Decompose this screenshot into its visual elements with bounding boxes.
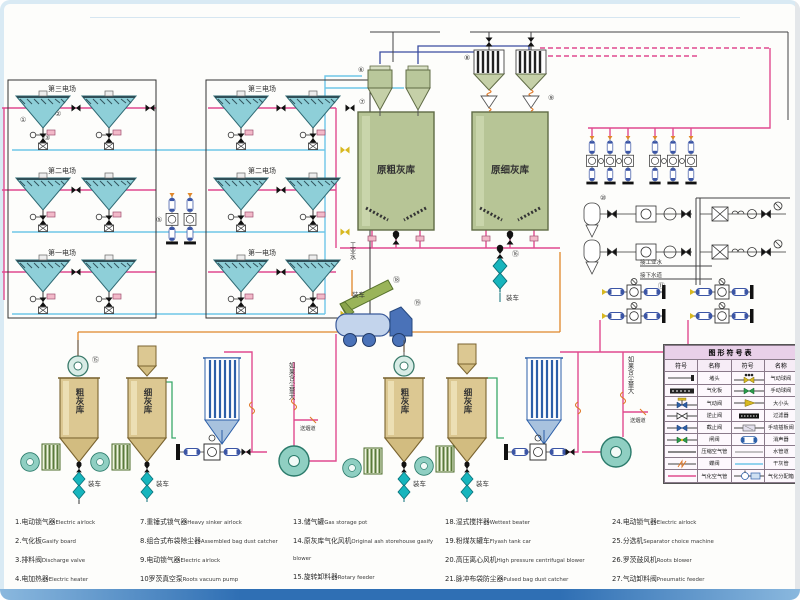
legend-item: 8.组合式布袋除尘器Assembled bag dust catcher <box>140 529 290 546</box>
legend-item: 18.湿式搅拌器Wettest beater <box>445 510 609 527</box>
symbol-table-header: 符号 <box>665 360 698 372</box>
legend-item: 2.气化板Gasify board <box>15 529 137 546</box>
pneumatic-valve-icon <box>665 397 698 409</box>
legend-item: 3.排料阀Discharge valve <box>15 548 137 565</box>
if-dust-large-label: 如果含尘量大 <box>288 361 295 401</box>
muffler-icon <box>732 435 765 445</box>
load-truck-label: 装车 <box>88 479 102 488</box>
svg-text:⑤: ⑤ <box>156 216 162 224</box>
legend-column-4: 18.湿式搅拌器Wettest beater 19.粉煤灰罐车Flyash ta… <box>445 510 609 600</box>
legend-item: 26.罗茨鼓风机Roots blower <box>612 548 790 565</box>
legend-item: 25.分选机Separator choice machine <box>612 529 790 546</box>
esp-frame-left: 第三电场 第二电场 第一电场 <box>8 80 156 318</box>
legend-item: 21.脉冲布袋防尘器Pulsed bag dust catcher <box>445 567 609 584</box>
legend-item: 10罗茨真空泵Roots vacuum pump <box>140 567 290 584</box>
page-bottom-bar <box>0 589 800 600</box>
bag-filter-2 <box>525 358 563 444</box>
svg-text:⑪: ⑪ <box>658 282 665 290</box>
svg-text:⑮: ⑮ <box>92 356 99 364</box>
field-label: 第三电场 <box>248 84 276 93</box>
legend-item: 15.旋转卸料器Rotary feeder <box>293 565 443 582</box>
esp-hopper <box>286 255 340 314</box>
esp-hopper <box>286 173 340 232</box>
symbol-table-header: 符号 <box>731 360 764 372</box>
gasify-air-pipes-dashed <box>540 48 770 56</box>
esp-hopper <box>214 91 268 150</box>
symbol-table-header: 名称 <box>764 360 797 372</box>
fine-silo-2: 细灰库 <box>446 344 488 502</box>
compressed-air-pipe-icon <box>665 447 698 457</box>
pneumatic-ball-valve-icon <box>732 372 765 384</box>
connect-industrial-water-label: 接工业水 <box>640 258 663 266</box>
esp-hopper <box>16 255 70 314</box>
silo-label: 粗灰库 <box>399 387 409 414</box>
silo-label: 细灰库 <box>462 387 472 414</box>
connect-sewer-label: 接下水道 <box>640 271 663 279</box>
silo-label: 细灰库 <box>142 387 152 414</box>
esp-hopper <box>286 91 340 150</box>
esp-hopper <box>214 173 268 232</box>
symbol-table-header: 名称 <box>698 360 731 372</box>
industrial-water-label: 工业水 <box>349 242 356 260</box>
esp-hopper <box>214 255 268 314</box>
gasify-distribution-box-icon <box>732 470 765 482</box>
legend-item: 20.高压离心风机High pressure centrifugal blowe… <box>445 548 609 565</box>
to-flue-label: 送烟道 <box>630 416 646 424</box>
svg-text:③: ③ <box>44 134 50 142</box>
svg-text:①: ① <box>20 116 26 124</box>
svg-text:⑨: ⑨ <box>548 94 554 102</box>
legend-column-5: 24.电动锁气器Electric airlock 25.分选机Separator… <box>612 510 790 600</box>
esp-hopper <box>82 91 136 150</box>
raw-coarse-silo: 原粗灰库 <box>358 112 434 230</box>
ash-gasify-blowers <box>166 193 196 244</box>
legend-item: 19.粉煤灰罐车Flyash tank car <box>445 529 609 546</box>
dry-ash-pipe-icon <box>732 459 765 469</box>
coarse-silo-2: 粗灰库 <box>383 340 425 502</box>
vent-pipes <box>380 46 529 64</box>
esp-hopper <box>82 173 136 232</box>
stop-valve-icon <box>665 423 698 433</box>
wettest-beater <box>340 280 393 316</box>
dry-ash-pipes <box>12 76 404 314</box>
bulk-loader-mid <box>493 245 507 302</box>
legend-item: 24.电动锁气器Electric airlock <box>612 510 790 527</box>
field-label: 第一电场 <box>248 248 276 257</box>
raw-fine-silo: 原细灰库 <box>472 112 548 230</box>
legend-item: 4.电加热器Electric heater <box>15 567 137 584</box>
svg-text:⑦: ⑦ <box>359 98 365 106</box>
gasify-air-pipe-icon <box>665 471 698 481</box>
legend-item: 27.气动卸料阀Pneumatic feeder <box>612 567 790 584</box>
gas-storage-pots <box>584 203 600 274</box>
manual-slide-gate-icon <box>732 423 765 433</box>
equipment-legend: 1.电动锁气器Electric airlock 2.气化板Gasify boar… <box>0 506 800 588</box>
svg-text:⑱: ⑱ <box>393 276 400 284</box>
graphic-symbol-table: 图形符号表 符号 名称 符号 名称 堵头 气动球阀 气化板 手动球阀 气动阀 大… <box>663 344 799 484</box>
flow-diagram-page: 第三电场 第二电场 第一电场 第三电场 第二电场 第一电场 原粗灰库 原细灰库 <box>0 0 800 600</box>
vacuum-train-1 <box>176 435 251 460</box>
legend-item: 14.原灰库气化风机Original ash storehouse gasify… <box>293 529 443 564</box>
legend-column-2: 7.重锤式锁气器Heavy sinker airlock 8.组合式布袋除尘器A… <box>140 510 290 600</box>
suction-blower-1 <box>279 446 309 476</box>
suction-blower-2 <box>601 437 631 467</box>
legend-item: 7.重锤式锁气器Heavy sinker airlock <box>140 510 290 527</box>
gate-valve-icon <box>665 435 698 445</box>
butterfly-valve-icon <box>665 459 698 469</box>
vacuum-pump-sets <box>584 202 786 274</box>
roots-blower-bank <box>586 136 696 184</box>
field-label: 第二电场 <box>248 166 276 175</box>
svg-text:②: ② <box>55 110 61 118</box>
load-truck-label: 装车 <box>506 293 520 302</box>
load-truck-label: 装车 <box>352 290 366 299</box>
filter-icon <box>732 411 765 421</box>
screw-compressor-trains <box>602 279 754 324</box>
water-pipe-icon <box>732 447 765 457</box>
gasify-board-icon <box>665 386 698 396</box>
to-flue-label: 送烟道 <box>300 424 316 432</box>
legend-column-3: 13.储气罐Gas storage pot 14.原灰库气化风机Original… <box>293 510 443 600</box>
cyclone-separators <box>368 66 430 116</box>
plug-icon <box>665 373 698 383</box>
esp-hopper <box>16 173 70 232</box>
scan-edge-strip <box>795 0 800 600</box>
silo-label: 粗灰库 <box>74 387 84 414</box>
reducer-icon <box>732 398 765 408</box>
svg-text:⑲: ⑲ <box>414 299 421 307</box>
esp-frame-right: 第三电场 第二电场 第一电场 <box>206 80 370 318</box>
silo-label: 原粗灰库 <box>377 164 416 176</box>
load-truck-label: 装车 <box>413 479 427 488</box>
load-truck-label: 装车 <box>476 479 490 488</box>
silo-label: 原细灰库 <box>491 164 530 176</box>
fine-silo-1: 细灰库 <box>126 346 168 502</box>
esp-hopper <box>82 255 136 314</box>
svg-text:⑧: ⑧ <box>464 54 470 62</box>
field-label: 第三电场 <box>48 84 76 93</box>
svg-text:⑯: ⑯ <box>512 250 519 258</box>
manual-ball-valve-icon <box>732 386 765 396</box>
check-valve-icon <box>665 411 698 421</box>
svg-text:⑥: ⑥ <box>358 66 364 74</box>
legend-item: 13.储气罐Gas storage pot <box>293 510 443 527</box>
if-dust-large-label: 如果含尘量大 <box>627 355 634 395</box>
field-label: 第二电场 <box>48 166 76 175</box>
field-label: 第一电场 <box>48 248 76 257</box>
legend-item: 9.电动锁气器Electric airlock <box>140 548 290 565</box>
symbol-table-title: 图形符号表 <box>665 346 798 360</box>
silo-discharge-valves <box>368 231 538 245</box>
svg-text:⑩: ⑩ <box>600 194 606 202</box>
multi-pipe-collectors <box>474 38 546 112</box>
bag-filter-1 <box>203 358 241 444</box>
legend-column-1: 1.电动锁气器Electric airlock 2.气化板Gasify boar… <box>15 510 137 600</box>
legend-item: 1.电动锁气器Electric airlock <box>15 510 137 527</box>
vacuum-train-2 <box>504 435 575 460</box>
load-truck-label: 装车 <box>156 479 170 488</box>
